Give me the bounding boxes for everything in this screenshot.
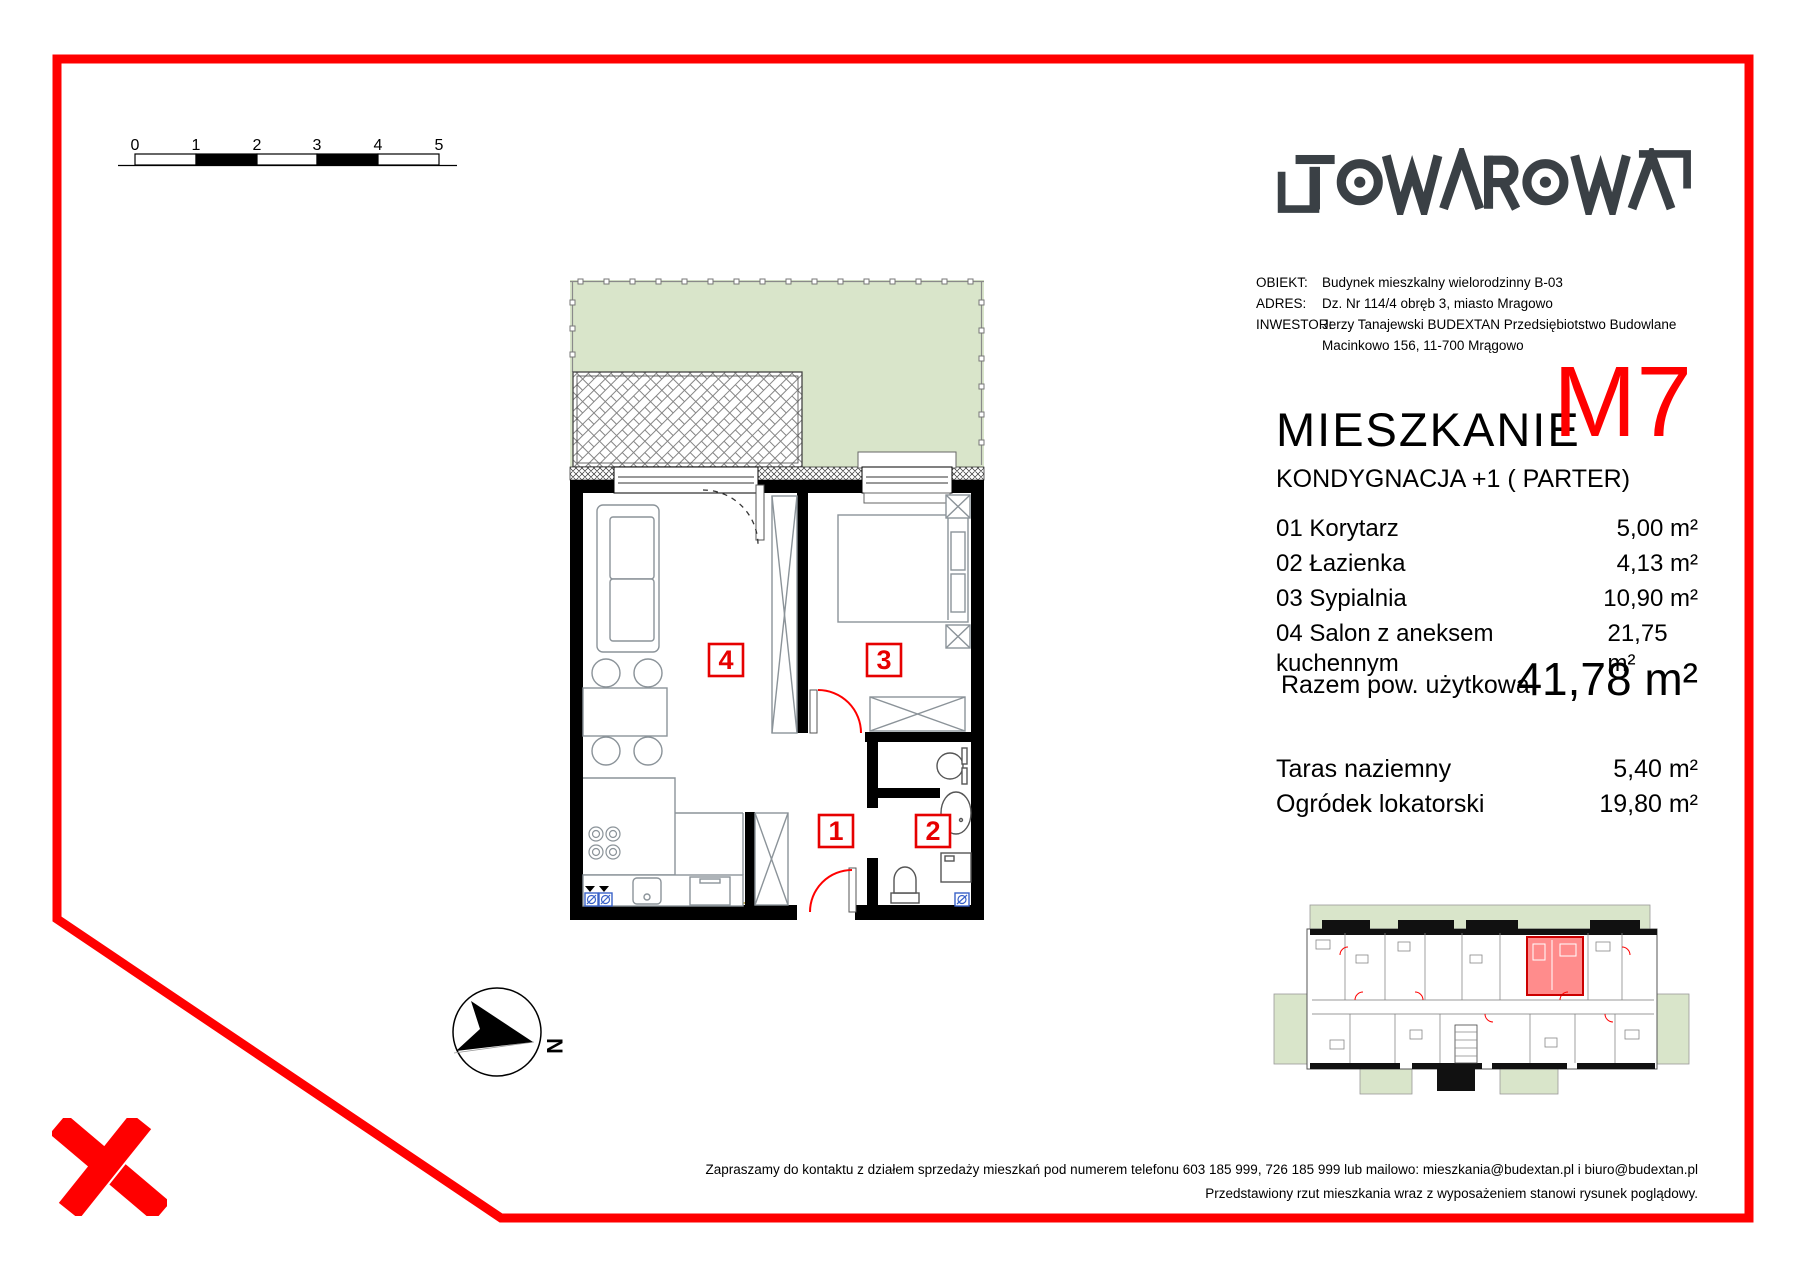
outdoor-label: Taras naziemny xyxy=(1276,753,1451,788)
room-label-salon: 4 xyxy=(718,645,733,675)
towarowa-logo-mark xyxy=(1274,148,1694,215)
outdoor-row-ogrodek: Ogródek lokatorski 19,80 m² xyxy=(1276,788,1698,823)
outdoor-value: 19,80 m² xyxy=(1599,788,1698,823)
info-label xyxy=(1256,335,1322,356)
terrace-door-window xyxy=(614,467,758,493)
keyplan-highlighted-unit xyxy=(1527,937,1583,995)
info-value: Jerzy Tanajewski BUDEXTAN Przedsiębiotst… xyxy=(1322,314,1714,335)
outdoor-label: Ogródek lokatorski xyxy=(1276,788,1484,823)
outdoor-value: 5,40 m² xyxy=(1613,753,1698,788)
toilet xyxy=(891,893,919,903)
room-list: 01 Korytarz 5,00 m² 02 Łazienka 4,13 m² … xyxy=(1276,514,1698,654)
chair xyxy=(592,659,620,687)
chair xyxy=(634,737,662,765)
total-area-label: Razem pow. użytkowa xyxy=(1281,673,1530,698)
chair xyxy=(592,737,620,765)
footer-contact-line: Zapraszamy do kontaktu z działem sprzeda… xyxy=(578,1158,1698,1182)
room-area: 4,13 m² xyxy=(1617,549,1698,584)
room-name: 01 Korytarz xyxy=(1276,514,1399,549)
room-row: 03 Sypialnia 10,90 m² xyxy=(1276,584,1698,619)
budextan-x-logo xyxy=(52,1118,167,1216)
balcony-door xyxy=(703,485,764,545)
info-row-adres: ADRES: Dz. Nr 114/4 obręb 3, miasto Mrag… xyxy=(1256,293,1714,314)
room-area: 10,90 m² xyxy=(1603,584,1698,619)
room-name: 02 Łazienka xyxy=(1276,549,1405,584)
terrace xyxy=(573,372,802,467)
info-label: INWESTOR: xyxy=(1256,314,1322,335)
info-value: Budynek mieszkalny wielorodzinny B-03 xyxy=(1322,272,1714,293)
bedroom-window xyxy=(858,452,956,503)
room-row: 04 Salon z aneksem kuchennym 21,75 m² xyxy=(1276,619,1698,654)
total-area-value: 41,78 m² xyxy=(1516,656,1698,702)
info-row-obiekt: OBIEKT: Budynek mieszkalny wielorodzinny… xyxy=(1256,272,1714,293)
bedroom-furniture xyxy=(838,495,970,731)
dining-table xyxy=(583,688,667,736)
svg-text:1: 1 xyxy=(192,137,201,154)
chair xyxy=(634,659,662,687)
outdoor-row-taras: Taras naziemny 5,40 m² xyxy=(1276,753,1698,788)
towarowa-logo: TOWAROWA xyxy=(1274,148,1694,215)
svg-text:0: 0 xyxy=(131,137,140,154)
outdoor-areas: Taras naziemny 5,40 m² Ogródek lokatorsk… xyxy=(1276,753,1698,823)
room-label-lazienka: 2 xyxy=(925,816,940,846)
toilet-bowl xyxy=(894,867,916,893)
keyplan-building xyxy=(1307,929,1657,1069)
room-label-korytarz: 1 xyxy=(828,816,843,846)
scale-bar: 0 1 2 3 4 5 xyxy=(100,130,480,180)
info-label: ADRES: xyxy=(1256,293,1322,314)
room-area: 5,00 m² xyxy=(1617,514,1698,549)
apartment-floor-plan: 4 3 1 2 xyxy=(540,250,1000,940)
bedroom-door xyxy=(810,690,861,733)
svg-text:2: 2 xyxy=(253,137,262,154)
entrance-door xyxy=(810,868,856,912)
svg-text:4: 4 xyxy=(374,137,383,154)
page-title: MIESZKANIE xyxy=(1276,406,1581,453)
building-key-plan xyxy=(1270,898,1695,1103)
info-value: Dz. Nr 114/4 obręb 3, miasto Mragowo xyxy=(1322,293,1714,314)
floorplan-sheet: { "scale_bar": { "ticks": ["0", "1", "2"… xyxy=(0,0,1800,1271)
project-info: OBIEKT: Budynek mieszkalny wielorodzinny… xyxy=(1256,272,1714,356)
room-label-sypialnia: 3 xyxy=(876,645,891,675)
room-name: 03 Sypialnia xyxy=(1276,584,1407,619)
svg-text:3: 3 xyxy=(313,137,322,154)
stove xyxy=(589,827,620,859)
hall-wardrobe xyxy=(755,813,788,905)
washbasin xyxy=(937,753,963,779)
room-row: 01 Korytarz 5,00 m² xyxy=(1276,514,1698,549)
svg-text:5: 5 xyxy=(435,137,444,154)
north-label: N xyxy=(542,1038,567,1054)
scale-bar-ticks: 0 1 2 3 4 5 xyxy=(131,137,444,154)
footer-disclaimer-line: Przedstawiony rzut mieszkania wraz z wyp… xyxy=(578,1182,1698,1206)
room-row: 02 Łazienka 4,13 m² xyxy=(1276,549,1698,584)
north-compass: N xyxy=(440,975,570,1095)
room-area: 21,75 m² xyxy=(1607,619,1698,654)
floor-subtitle: KONDYGNACJA +1 ( PARTER) xyxy=(1276,467,1630,492)
info-row-inwestor: INWESTOR: Jerzy Tanajewski BUDEXTAN Prze… xyxy=(1256,314,1714,335)
footer: Zapraszamy do kontaktu z działem sprzeda… xyxy=(578,1158,1698,1206)
room-name: 04 Salon z aneksem kuchennym xyxy=(1276,619,1607,654)
unit-number: M7 xyxy=(1553,352,1692,452)
info-label: OBIEKT: xyxy=(1256,272,1322,293)
